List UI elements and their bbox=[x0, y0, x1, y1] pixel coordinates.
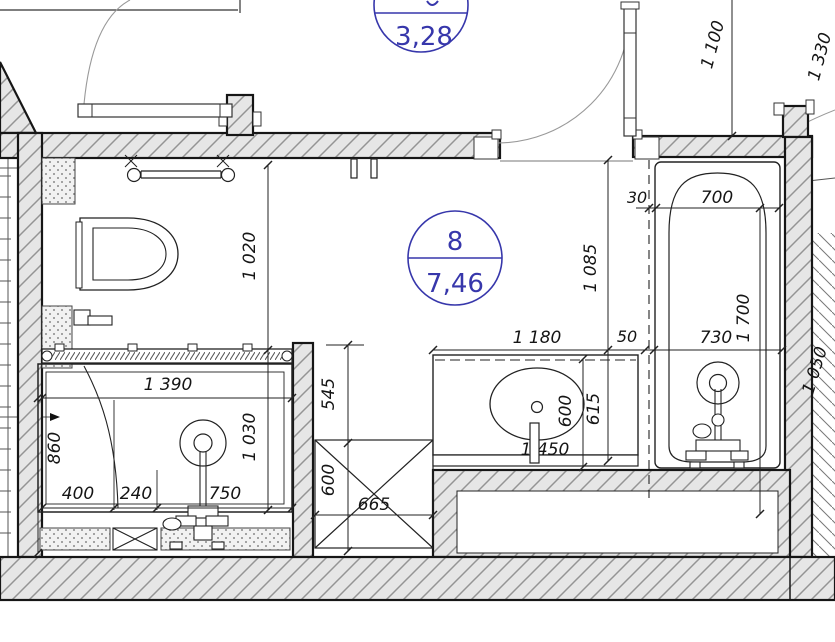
dim-1700: 1 700 bbox=[734, 294, 754, 343]
room-badge-main: 8 7,46 bbox=[408, 211, 502, 305]
dim-400: 400 bbox=[62, 484, 94, 504]
dim-240: 240 bbox=[120, 484, 152, 504]
room-area-top: 3,28 bbox=[395, 22, 453, 52]
floor-plan-drawing: 1 450 bbox=[0, 0, 835, 642]
dim-30: 30 bbox=[627, 188, 647, 207]
wall-shower-partition bbox=[293, 343, 313, 557]
room-area-main: 7,46 bbox=[426, 269, 484, 299]
dim-615: 615 bbox=[584, 393, 604, 425]
upper-room-door bbox=[78, 0, 240, 117]
room-number-main: 8 bbox=[447, 227, 464, 257]
dim-730: 730 bbox=[700, 328, 732, 348]
sink-counter: 1 450 bbox=[433, 355, 638, 466]
dim-1085: 1 085 bbox=[581, 244, 601, 293]
door-leaf bbox=[624, 8, 636, 136]
dim-665: 665 bbox=[358, 495, 390, 515]
dim-600-sink: 600 bbox=[556, 395, 576, 427]
dim-1390: 1 390 bbox=[144, 375, 193, 395]
dim-1030: 1 030 bbox=[240, 413, 260, 462]
dim-1450: 1 450 bbox=[521, 440, 570, 460]
wall-top-left bbox=[0, 133, 500, 158]
dim-1100: 1 100 bbox=[697, 19, 729, 71]
duct-inset bbox=[457, 491, 778, 553]
door-leaf bbox=[78, 104, 232, 117]
wall-corner-bump bbox=[783, 106, 808, 137]
floor-box bbox=[113, 528, 157, 550]
dim-545: 545 bbox=[319, 378, 339, 410]
door-swing-arc bbox=[497, 10, 630, 143]
toilet bbox=[74, 218, 178, 325]
wall-bottom-band bbox=[0, 557, 835, 600]
dim-700: 700 bbox=[701, 188, 733, 208]
dim-1020: 1 020 bbox=[240, 232, 260, 281]
shower-drain bbox=[180, 420, 226, 466]
dim-860: 860 bbox=[45, 432, 65, 464]
floor-plan-page: 1 450 bbox=[0, 0, 835, 642]
sink-faucet bbox=[530, 423, 539, 463]
dim-1330: 1 330 bbox=[804, 31, 835, 83]
dim-1180: 1 180 bbox=[513, 328, 562, 348]
dim-50-tub: 50 bbox=[617, 327, 637, 346]
pipe-marks bbox=[351, 159, 377, 178]
door-swing-arc bbox=[84, 0, 130, 104]
entry-door bbox=[497, 2, 639, 161]
dim-750: 750 bbox=[209, 484, 241, 504]
dim-600-box: 600 bbox=[319, 464, 339, 496]
room-badge-top: 3,28 bbox=[374, 0, 468, 52]
wall-topleft-wedge bbox=[0, 62, 36, 133]
